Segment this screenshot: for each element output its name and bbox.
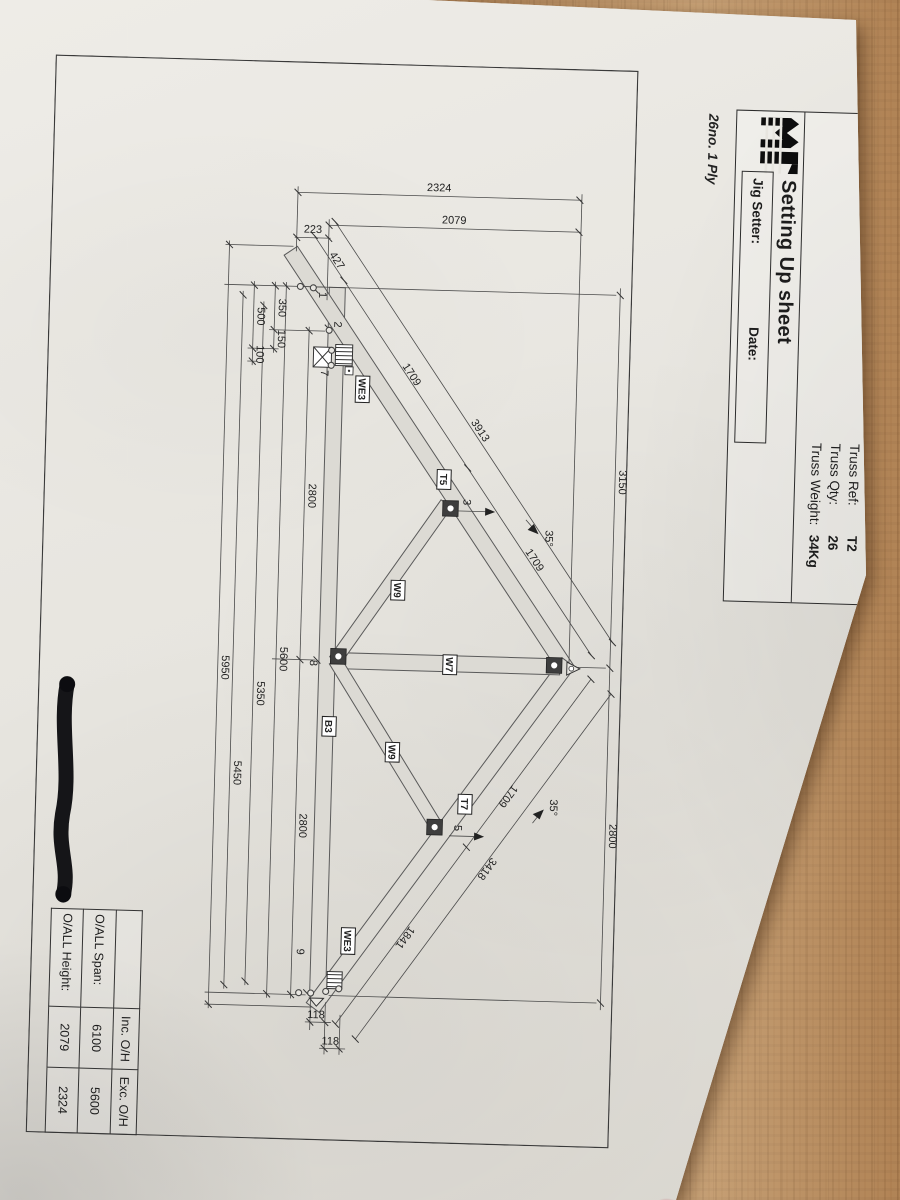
jig-setter-label: Jig Setter: bbox=[749, 178, 766, 244]
svg-text:W9: W9 bbox=[385, 745, 396, 761]
svg-text:W7: W7 bbox=[443, 657, 454, 673]
svg-text:WE3: WE3 bbox=[341, 930, 353, 952]
truss-qty-value: 26 bbox=[822, 535, 843, 602]
svg-text:9: 9 bbox=[294, 948, 306, 954]
ply-note: 26no. 1 Ply bbox=[704, 114, 722, 210]
overall-span-exc: 5600 bbox=[78, 1068, 112, 1134]
svg-text:5950: 5950 bbox=[218, 655, 231, 680]
title-block: Truss Ref: T2 Truss Qty: 26 Truss Weight… bbox=[723, 110, 887, 606]
document-content: 3150280023242079223280028005600535054505… bbox=[0, 0, 900, 1200]
svg-text:1709: 1709 bbox=[496, 783, 520, 810]
svg-text:500: 500 bbox=[254, 307, 267, 326]
svg-text:2324: 2324 bbox=[427, 182, 452, 195]
summary-height-row: O/ALL Height: 2079 2324 bbox=[45, 908, 84, 1133]
overall-span-label: O/ALL Span: bbox=[81, 909, 116, 1008]
svg-text:2800: 2800 bbox=[305, 483, 318, 508]
truss-info: Truss Ref: T2 Truss Qty: 26 Truss Weight… bbox=[803, 443, 864, 603]
truss-weight-label: Truss Weight: bbox=[805, 443, 827, 535]
svg-text:5: 5 bbox=[451, 825, 463, 831]
svg-text:427: 427 bbox=[326, 250, 346, 272]
svg-text:2079: 2079 bbox=[442, 214, 467, 227]
svg-text:35°: 35° bbox=[547, 799, 559, 816]
svg-text:1709: 1709 bbox=[523, 547, 546, 574]
svg-text:1841: 1841 bbox=[393, 924, 417, 951]
svg-text:T5: T5 bbox=[437, 474, 448, 486]
truss-ref-label: Truss Ref: bbox=[843, 444, 865, 536]
overall-height-inc: 2079 bbox=[47, 1007, 81, 1068]
paper-sheet: 3150280023242079223280028005600535054505… bbox=[0, 0, 900, 1200]
svg-text:1: 1 bbox=[316, 292, 328, 298]
svg-text:150: 150 bbox=[275, 330, 288, 349]
svg-text:2: 2 bbox=[331, 321, 343, 327]
date-label: Date: bbox=[745, 327, 761, 361]
paper-shadow-wrap: 3150280023242079223280028005600535054505… bbox=[0, 0, 900, 1200]
svg-text:WE3: WE3 bbox=[355, 378, 367, 400]
svg-text:350: 350 bbox=[276, 299, 289, 318]
svg-text:3418: 3418 bbox=[475, 855, 499, 882]
jig-setter-date-box: Jig Setter: Date: bbox=[734, 171, 774, 444]
svg-text:T7: T7 bbox=[458, 798, 469, 810]
svg-text:100: 100 bbox=[253, 345, 266, 364]
svg-text:223: 223 bbox=[304, 224, 323, 237]
svg-text:118: 118 bbox=[321, 1035, 339, 1047]
svg-text:3913: 3913 bbox=[468, 417, 491, 444]
svg-text:2800: 2800 bbox=[296, 813, 309, 838]
overall-height-label: O/ALL Height: bbox=[49, 908, 84, 1007]
sheet-title: Setting Up sheet bbox=[772, 180, 800, 345]
svg-text:8: 8 bbox=[307, 660, 319, 666]
overall-height-exc: 2324 bbox=[45, 1067, 79, 1133]
overall-span-inc: 6100 bbox=[79, 1007, 113, 1068]
summary-empty-cell bbox=[114, 910, 143, 1009]
svg-text:35°: 35° bbox=[542, 530, 554, 547]
photo-of-truss-setting-up-sheet: 3150280023242079223280028005600535054505… bbox=[0, 0, 900, 1200]
summary-table: Inc. O/H Exc. O/H O/ALL Span: 6100 5600 … bbox=[45, 908, 143, 1135]
summary-header-inc: Inc. O/H bbox=[112, 1008, 140, 1069]
truss-weight-value: 34Kg bbox=[803, 535, 824, 602]
svg-text:B3: B3 bbox=[322, 720, 333, 734]
svg-text:3150: 3150 bbox=[616, 470, 629, 495]
svg-text:7: 7 bbox=[318, 370, 330, 376]
summary-span-row: O/ALL Span: 6100 5600 bbox=[78, 909, 117, 1134]
svg-text:5450: 5450 bbox=[230, 760, 243, 785]
svg-text:1709: 1709 bbox=[400, 361, 423, 388]
truss-ref-value: T2 bbox=[841, 536, 862, 603]
truss-qty-label: Truss Qty: bbox=[824, 443, 846, 535]
svg-text:5600: 5600 bbox=[277, 647, 290, 672]
svg-text:3: 3 bbox=[460, 499, 472, 505]
summary-header-exc: Exc. O/H bbox=[110, 1069, 138, 1135]
svg-text:W9: W9 bbox=[391, 583, 402, 599]
svg-text:2800: 2800 bbox=[606, 824, 619, 849]
svg-text:5350: 5350 bbox=[254, 681, 267, 706]
mitek-logo bbox=[760, 117, 800, 174]
svg-text:118: 118 bbox=[307, 1009, 325, 1021]
